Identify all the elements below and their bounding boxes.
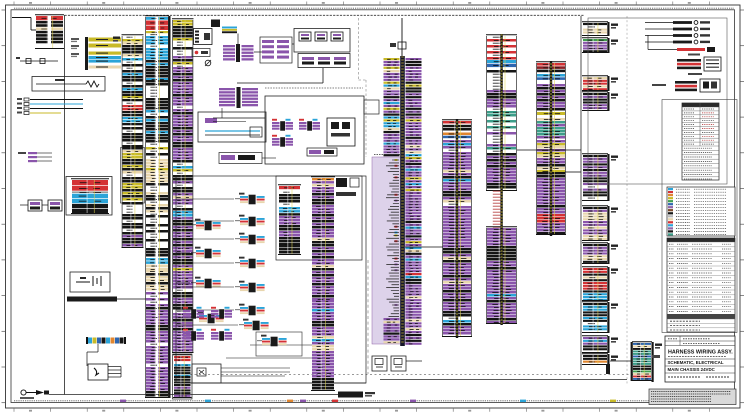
svg-text:HARNESS WIRING ASSY.: HARNESS WIRING ASSY. <box>668 350 733 356</box>
svg-text:MAIN CHASSIS 24VDC: MAIN CHASSIS 24VDC <box>668 367 716 372</box>
svg-text:SCHEMATIC, ELECTRICAL: SCHEMATIC, ELECTRICAL <box>668 360 724 365</box>
